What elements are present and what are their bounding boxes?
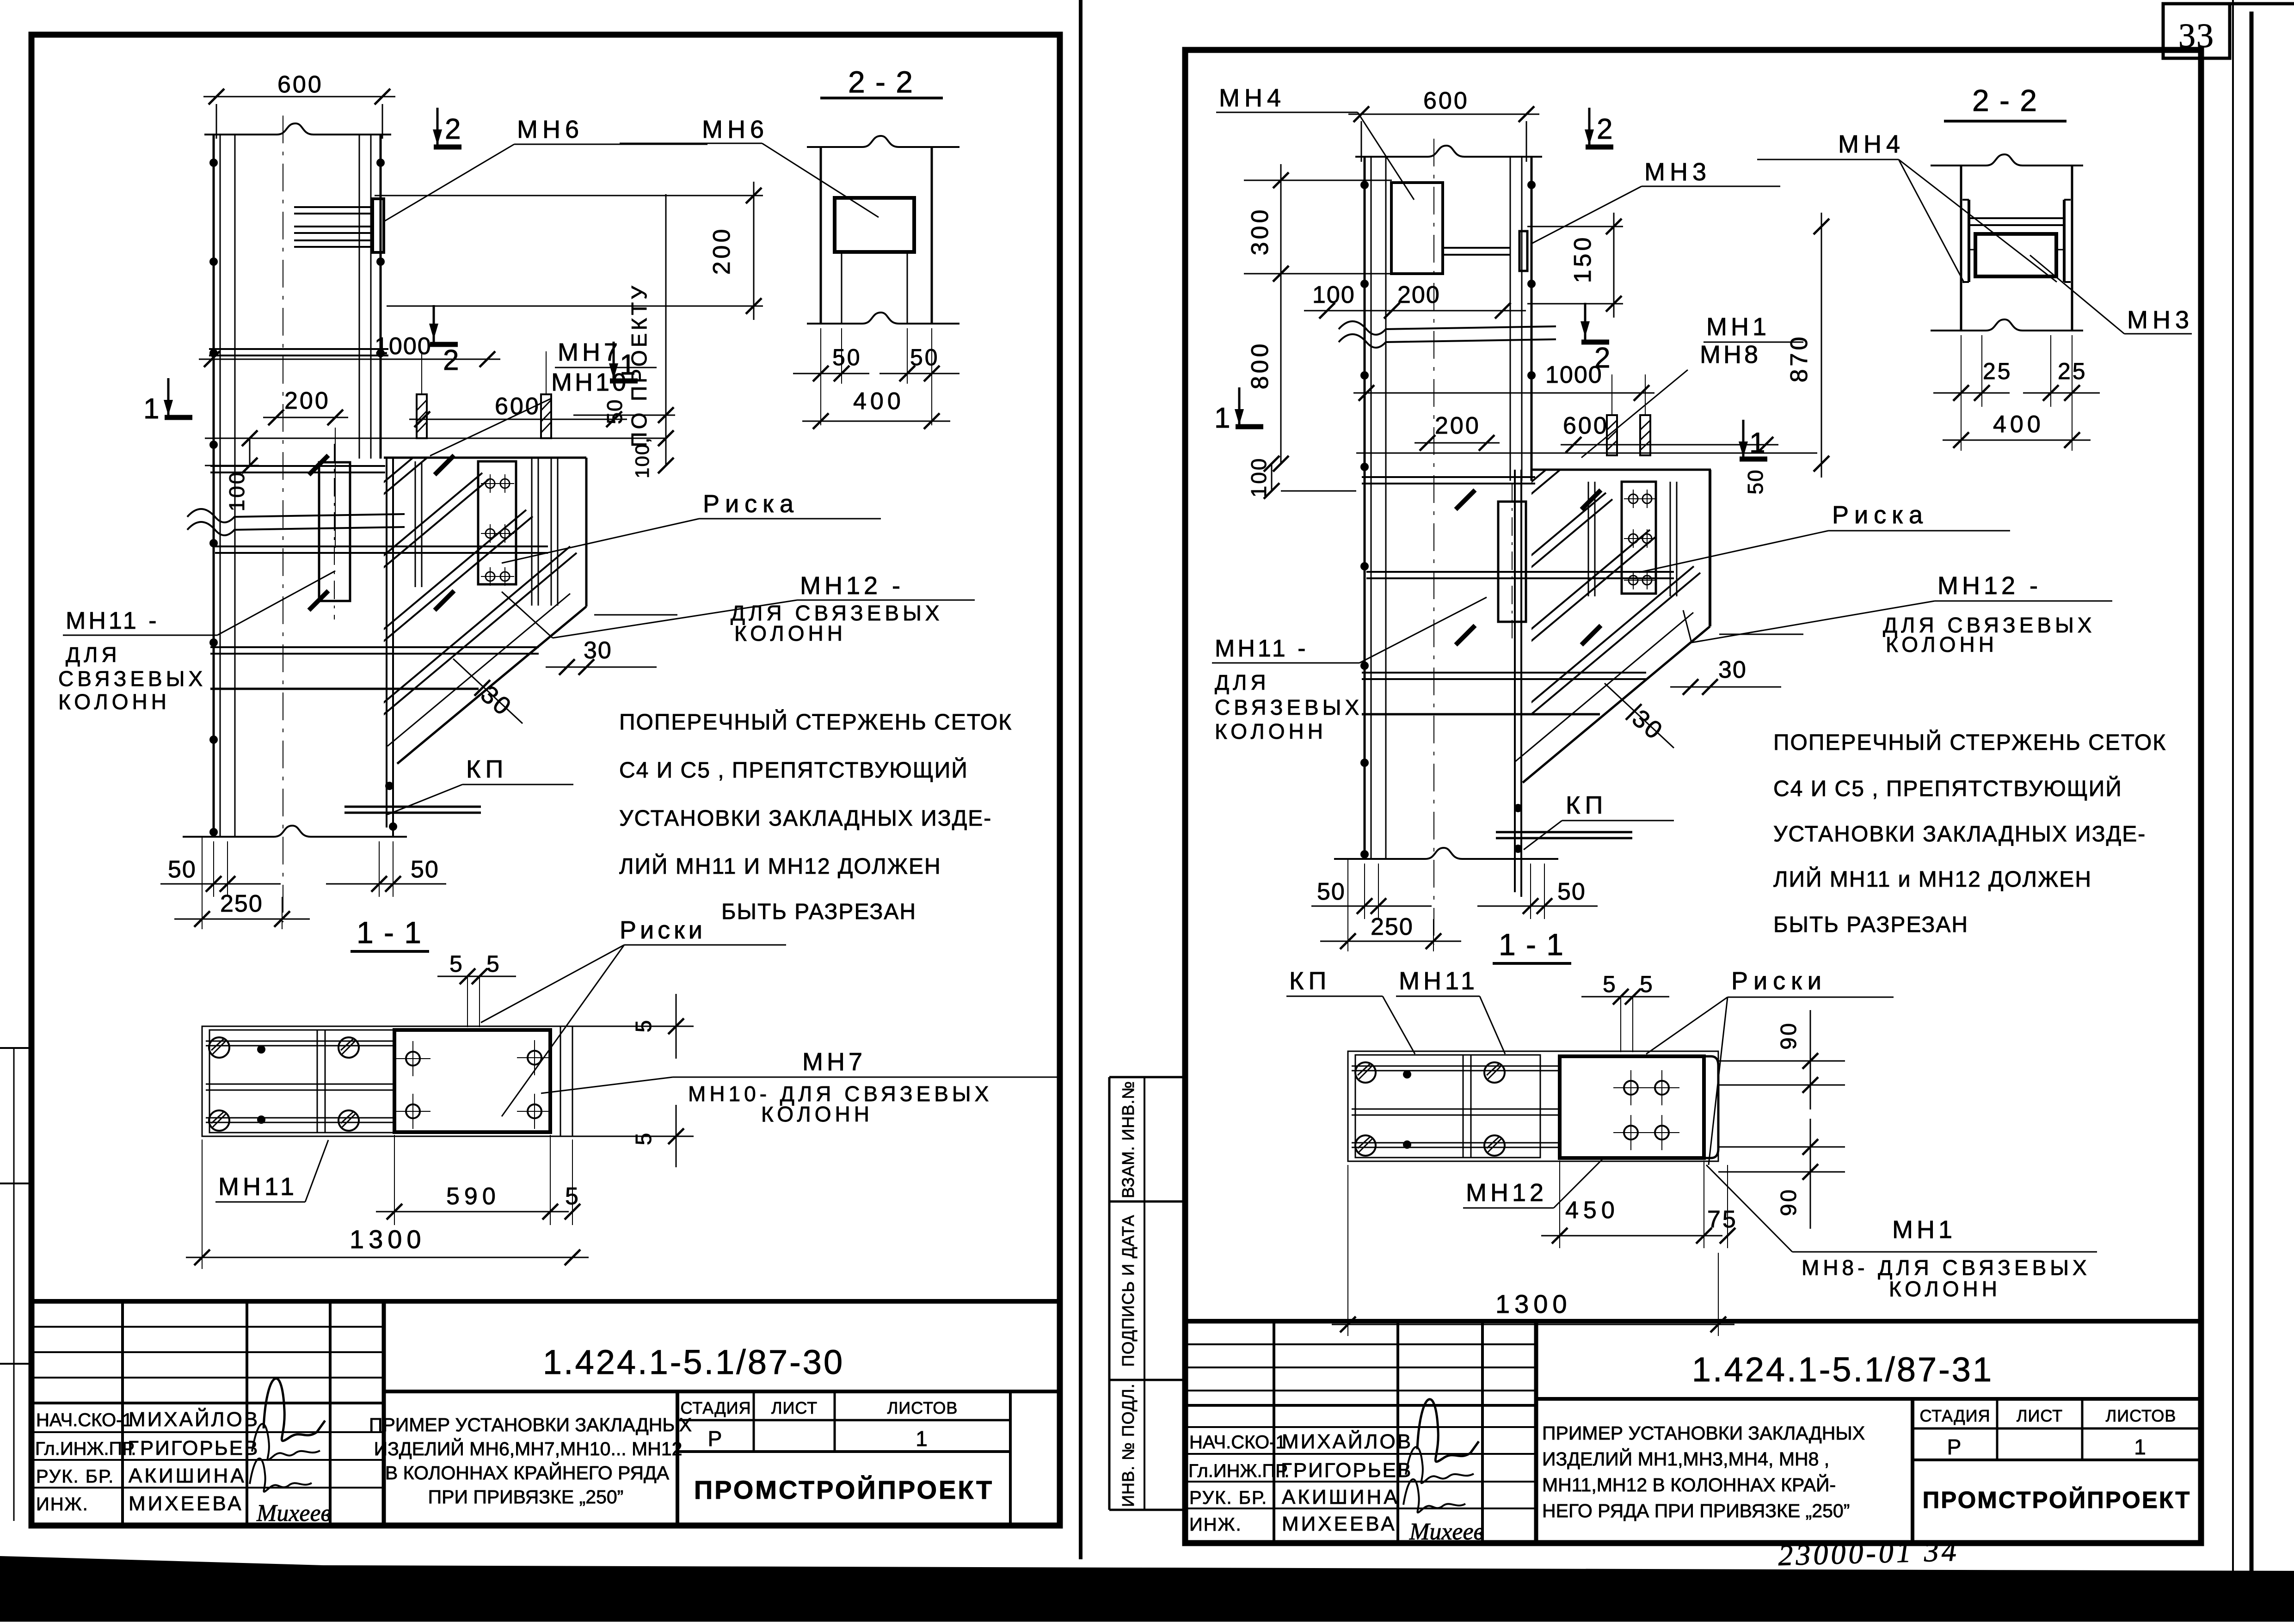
svg-text:Р: Р [1947, 1435, 1963, 1459]
svg-text:МН12 -: МН12 - [1937, 572, 2042, 600]
svg-text:МН11: МН11 [218, 1173, 298, 1201]
svg-text:300: 300 [1247, 207, 1273, 256]
svg-text:590: 590 [446, 1183, 500, 1210]
svg-text:МН11 -: МН11 - [1215, 635, 1309, 662]
svg-text:С4 И С5 , ПРЕПЯТСТВУЮЩИЙ: С4 И С5 , ПРЕПЯТСТВУЮЩИЙ [619, 757, 968, 783]
svg-text:50: 50 [168, 856, 197, 883]
svg-text:150: 150 [1569, 235, 1596, 283]
svg-text:450: 450 [1565, 1197, 1619, 1224]
svg-text:КП: КП [1289, 967, 1331, 995]
svg-text:БЫТЬ РАЗРЕЗАН: БЫТЬ РАЗРЕЗАН [1773, 913, 1968, 937]
svg-text:БЫТЬ РАЗРЕЗАН: БЫТЬ РАЗРЕЗАН [721, 900, 916, 924]
svg-text:ИНЖ.: ИНЖ. [1189, 1514, 1242, 1535]
svg-text:2: 2 [443, 344, 459, 376]
svg-text:КП: КП [466, 755, 508, 783]
svg-text:АКИШИНА: АКИШИНА [129, 1465, 246, 1487]
svg-text:ГРИГОРЬЕВ: ГРИГОРЬЕВ [128, 1437, 259, 1459]
svg-text:КОЛОНН: КОЛОНН [1215, 719, 1327, 743]
svg-text:В КОЛОННАХ КРАЙНЕГО РЯДА: В КОЛОННАХ КРАЙНЕГО РЯДА [385, 1462, 670, 1483]
svg-text:5: 5 [632, 1131, 656, 1146]
svg-text:Р: Р [708, 1427, 724, 1451]
svg-text:1000: 1000 [375, 333, 432, 360]
svg-text:ПРИ ПРИВЯЗКЕ „250”: ПРИ ПРИВЯЗКЕ „250” [428, 1486, 624, 1508]
svg-text:1300: 1300 [350, 1225, 426, 1254]
svg-text:МН4: МН4 [1219, 84, 1285, 112]
svg-text:ПРИМЕР УСТАНОВКИ ЗАКЛАДНЫХ: ПРИМЕР УСТАНОВКИ ЗАКЛАДНЫХ [369, 1414, 692, 1435]
svg-text:1: 1 [2134, 1435, 2148, 1459]
svg-text:800: 800 [1247, 341, 1273, 390]
svg-text:50: 50 [1317, 878, 1346, 905]
svg-text:250: 250 [1371, 913, 1414, 940]
svg-text:МН11: МН11 [1399, 967, 1478, 995]
svg-text:МН10: МН10 [551, 368, 629, 396]
svg-text:30: 30 [584, 637, 612, 664]
svg-text:2 - 2: 2 - 2 [1972, 83, 2038, 117]
svg-text:100: 100 [225, 471, 249, 512]
svg-text:600: 600 [1563, 412, 1609, 439]
svg-text:МН1: МН1 [1706, 313, 1770, 341]
svg-text:МН1: МН1 [1892, 1216, 1956, 1244]
svg-text:1: 1 [143, 393, 159, 425]
svg-text:90: 90 [1777, 1021, 1801, 1049]
svg-text:ГРИГОРЬЕВ: ГРИГОРЬЕВ [1281, 1459, 1412, 1482]
svg-text:1: 1 [1214, 402, 1230, 434]
svg-text:90: 90 [1777, 1188, 1801, 1216]
svg-text:МН12: МН12 [1466, 1179, 1547, 1207]
svg-text:5: 5 [1603, 971, 1616, 997]
svg-text:Риски: Риски [1731, 967, 1827, 995]
svg-text:400: 400 [853, 388, 904, 415]
svg-text:С4 И С5 , ПРЕПЯТСТВУЮЩИЙ: С4 И С5 , ПРЕПЯТСТВУЮЩИЙ [1773, 776, 2122, 801]
svg-text:ИЗДЕЛИЙ МН1,МН3,МН4, МН8 ,: ИЗДЕЛИЙ МН1,МН3,МН4, МН8 , [1542, 1448, 1829, 1470]
svg-text:ЛИЙ МН11 И МН12 ДОЛЖЕН: ЛИЙ МН11 И МН12 ДОЛЖЕН [619, 853, 941, 879]
svg-text:_: _ [507, 596, 510, 597]
svg-text:КОЛОНН: КОЛОНН [1886, 632, 1998, 656]
svg-text:ИНВ. № ПОДЛ.: ИНВ. № ПОДЛ. [1119, 1383, 1138, 1507]
svg-text:1.424.1-5.1/87-30: 1.424.1-5.1/87-30 [543, 1343, 844, 1381]
svg-text:АКИШИНА: АКИШИНА [1282, 1486, 1400, 1508]
svg-text:2: 2 [1594, 342, 1610, 374]
svg-text:2 - 2: 2 - 2 [848, 65, 914, 99]
svg-text:РУК. БР.: РУК. БР. [1189, 1488, 1267, 1508]
svg-text:СТАДИЯ: СТАДИЯ [1919, 1406, 1990, 1425]
svg-text:МН11 -: МН11 - [66, 607, 160, 634]
svg-text:ПРИМЕР УСТАНОВКИ ЗАКЛАДНЫХ: ПРИМЕР УСТАНОВКИ ЗАКЛАДНЫХ [1542, 1422, 1865, 1444]
svg-text:5: 5 [632, 1018, 656, 1033]
svg-text:ИЗДЕЛИЙ МН6,МН7,МН10... МН12: ИЗДЕЛИЙ МН6,МН7,МН10... МН12 [374, 1438, 683, 1459]
svg-text:ДЛЯ: ДЛЯ [1215, 670, 1270, 694]
svg-text:НАЧ.СКО-1: НАЧ.СКО-1 [1189, 1432, 1286, 1452]
svg-text:5: 5 [1640, 971, 1653, 997]
svg-text:200: 200 [1397, 282, 1440, 308]
svg-text:РУК. БР.: РУК. БР. [36, 1466, 114, 1487]
svg-text:1 - 1: 1 - 1 [357, 915, 422, 950]
svg-text:25: 25 [2058, 358, 2087, 384]
svg-text:Михеев: Михеев [256, 1500, 331, 1526]
svg-text:ВЗАМ. ИНВ.№: ВЗАМ. ИНВ.№ [1119, 1081, 1138, 1198]
svg-text:ЛИЙ МН11 и МН12 ДОЛЖЕН: ЛИЙ МН11 и МН12 ДОЛЖЕН [1773, 866, 2092, 892]
svg-text:МН3: МН3 [1644, 158, 1711, 186]
svg-text:600: 600 [1423, 87, 1469, 114]
svg-text:ЛИСТОВ: ЛИСТОВ [2106, 1406, 2177, 1425]
svg-text:СТАДИЯ: СТАДИЯ [680, 1398, 751, 1417]
svg-text:Гл.ИНЖ.ПР.: Гл.ИНЖ.ПР. [35, 1439, 136, 1459]
svg-text:МН12 -: МН12 - [800, 572, 904, 600]
svg-text:МН6: МН6 [702, 116, 769, 143]
svg-text:Риски: Риски [620, 916, 706, 944]
svg-text:200: 200 [708, 227, 735, 275]
svg-text:50: 50 [411, 856, 439, 883]
svg-text:ЛИСТОВ: ЛИСТОВ [887, 1398, 958, 1417]
svg-text:ИНЖ.: ИНЖ. [36, 1494, 89, 1514]
svg-text:200: 200 [1435, 412, 1481, 439]
svg-text:ПОПЕРЕЧНЫЙ СТЕРЖЕНЬ СЕТОК: ПОПЕРЕЧНЫЙ СТЕРЖЕНЬ СЕТОК [1773, 729, 2166, 755]
svg-text:1: 1 [916, 1427, 929, 1451]
svg-text:50: 50 [1557, 878, 1586, 905]
svg-text:УСТАНОВКИ ЗАКЛАДНЫХ ИЗДЕ-: УСТАНОВКИ ЗАКЛАДНЫХ ИЗДЕ- [619, 806, 992, 831]
svg-text:СВЯЗЕВЫХ: СВЯЗЕВЫХ [1215, 695, 1363, 719]
svg-text:ПРОМСТРОЙПРОЕКТ: ПРОМСТРОЙПРОЕКТ [1923, 1486, 2191, 1513]
svg-text:МН3: МН3 [2127, 306, 2194, 334]
svg-text:КОЛОНН: КОЛОНН [1889, 1277, 2001, 1301]
svg-text:МН4: МН4 [1838, 130, 1905, 158]
svg-text:Риска: Риска [703, 490, 799, 518]
svg-text:ПОДПИСЬ И ДАТА: ПОДПИСЬ И ДАТА [1119, 1214, 1138, 1367]
svg-text:МН11,МН12 В КОЛОННАХ КРАЙ-: МН11,МН12 В КОЛОННАХ КРАЙ- [1542, 1474, 1836, 1495]
svg-text:Гл.ИНЖ.ПР.: Гл.ИНЖ.ПР. [1188, 1461, 1290, 1481]
svg-text:МИХАЙЛОВ: МИХАЙЛОВ [129, 1407, 259, 1431]
svg-text:ПОПЕРЕЧНЫЙ СТЕРЖЕНЬ СЕТОК: ПОПЕРЕЧНЫЙ СТЕРЖЕНЬ СЕТОК [619, 709, 1012, 735]
svg-text:МИХЕЕВА: МИХЕЕВА [1282, 1513, 1397, 1535]
svg-text:МИХАЙЛОВ: МИХАЙЛОВ [1282, 1429, 1413, 1453]
svg-text:1 - 1: 1 - 1 [1499, 927, 1564, 962]
svg-text:30: 30 [1718, 656, 1747, 683]
svg-text:КОЛОНН: КОЛОНН [761, 1102, 873, 1126]
svg-text:УСТАНОВКИ ЗАКЛАДНЫХ ИЗДЕ-: УСТАНОВКИ ЗАКЛАДНЫХ ИЗДЕ- [1773, 822, 2146, 846]
svg-text:Михеев: Михеев [1409, 1519, 1484, 1545]
svg-text:600: 600 [277, 71, 323, 98]
svg-text:НЕГО РЯДА ПРИ ПРИВЯЗКЕ „250”: НЕГО РЯДА ПРИ ПРИВЯЗКЕ „250” [1542, 1500, 1850, 1521]
svg-text:КОЛОНН: КОЛОНН [734, 621, 846, 645]
svg-text:МН8- ДЛЯ СВЯЗЕВЫХ: МН8- ДЛЯ СВЯЗЕВЫХ [1802, 1256, 2091, 1280]
svg-text:23000-01 34: 23000-01 34 [1778, 1534, 1960, 1572]
svg-text:МН8: МН8 [1700, 341, 1761, 368]
svg-text:2: 2 [1597, 113, 1612, 145]
svg-text:2: 2 [445, 113, 461, 145]
svg-text:5: 5 [449, 951, 462, 977]
svg-text:100: 100 [1247, 457, 1271, 498]
svg-text:50: 50 [1743, 469, 1767, 494]
svg-text:5: 5 [486, 951, 499, 977]
svg-text:МН7: МН7 [558, 338, 621, 366]
svg-text:100,: 100, [631, 437, 653, 478]
svg-text:МН6: МН6 [517, 116, 584, 143]
svg-text:КОЛОНН: КОЛОНН [58, 690, 170, 714]
svg-text:МН7: МН7 [802, 1048, 866, 1076]
svg-text:870: 870 [1786, 334, 1813, 383]
svg-text:250: 250 [220, 890, 263, 917]
svg-text:25: 25 [1983, 358, 2012, 384]
svg-text:МИХЕЕВА: МИХЕЕВА [129, 1492, 244, 1515]
svg-text:НАЧ.СКО-1: НАЧ.СКО-1 [36, 1410, 133, 1430]
svg-text:1: 1 [1749, 427, 1765, 459]
svg-text:400: 400 [1993, 411, 2044, 438]
svg-text:1.424.1-5.1/87-31: 1.424.1-5.1/87-31 [1692, 1350, 1993, 1389]
svg-text:ПРОМСТРОЙПРОЕКТ: ПРОМСТРОЙПРОЕКТ [694, 1475, 994, 1504]
svg-text:50: 50 [603, 398, 627, 424]
svg-text:ЛИСТ: ЛИСТ [771, 1398, 818, 1417]
svg-text:Риска: Риска [1832, 501, 1928, 529]
svg-text:ЛИСТ: ЛИСТ [2017, 1406, 2063, 1425]
svg-text:50: 50 [832, 344, 862, 370]
svg-text:1300: 1300 [1495, 1289, 1572, 1318]
svg-text:КП: КП [1566, 791, 1607, 819]
svg-text:ДЛЯ: ДЛЯ [66, 643, 121, 667]
svg-text:СВЯЗЕВЫХ: СВЯЗЕВЫХ [58, 667, 206, 691]
svg-text:200: 200 [284, 387, 330, 414]
